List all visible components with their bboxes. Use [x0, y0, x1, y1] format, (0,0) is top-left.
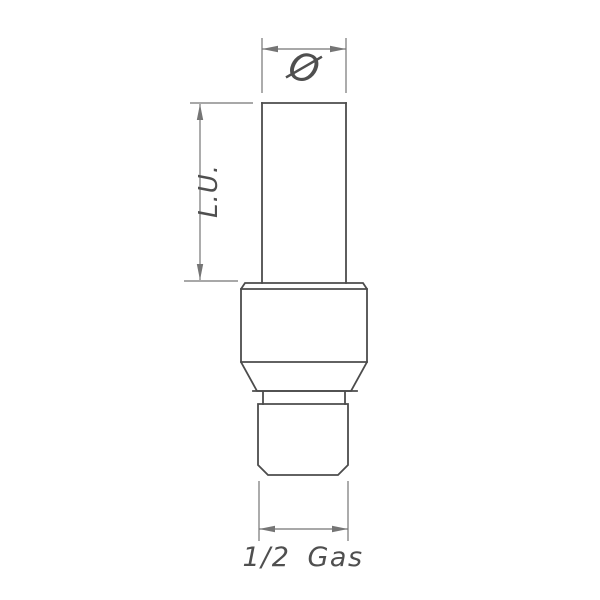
diameter-symbol: Ø — [283, 43, 325, 93]
threaded-section-outline — [258, 404, 348, 475]
collar-section — [263, 392, 345, 404]
diameter-dimension: Ø — [262, 38, 346, 93]
length-label: L.U. — [194, 164, 224, 218]
hex-body-outline — [241, 283, 367, 391]
arrowhead-left-icon — [262, 46, 278, 52]
arrowhead-up-icon — [197, 104, 203, 120]
arrowhead-down-icon — [197, 264, 203, 280]
hex-body-section — [241, 283, 367, 391]
length-dimension: L.U. — [184, 103, 253, 281]
technical-drawing: Ø L.U. — [0, 0, 600, 600]
arrowhead-right-icon — [330, 46, 346, 52]
tube-section — [262, 103, 346, 283]
thread-size-label: 1/2 Gas — [242, 542, 363, 573]
thread-dimension: 1/2 Gas — [242, 481, 363, 573]
arrowhead-right-icon — [332, 526, 348, 532]
arrowhead-left-icon — [259, 526, 275, 532]
threaded-section — [258, 404, 348, 475]
drawing-canvas: Ø L.U. — [0, 0, 600, 600]
